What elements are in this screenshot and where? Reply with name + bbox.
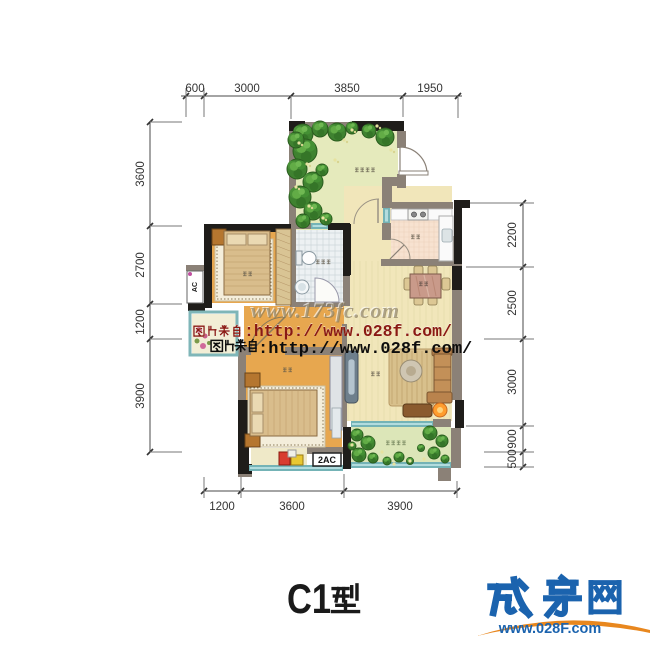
svg-text:2500: 2500	[507, 290, 519, 316]
svg-text:www.173fc.com: www.173fc.com	[251, 298, 400, 323]
svg-text:2200: 2200	[507, 222, 519, 248]
svg-text:3900: 3900	[387, 501, 413, 513]
svg-text:3000: 3000	[234, 83, 260, 95]
svg-text:C1: C1	[287, 576, 331, 623]
svg-text:900: 900	[507, 429, 519, 448]
svg-text::http://www.028f.com/: :http://www.028f.com/	[244, 322, 452, 341]
svg-text:500: 500	[507, 449, 519, 468]
svg-text:www.028F.com: www.028F.com	[498, 621, 602, 637]
svg-text:3850: 3850	[334, 83, 360, 95]
svg-text:AC: AC	[192, 282, 199, 292]
svg-text:3900: 3900	[135, 383, 147, 409]
svg-text:2AC: 2AC	[318, 455, 337, 465]
svg-text:3600: 3600	[279, 501, 305, 513]
svg-text::http://www.028f.com/: :http://www.028f.com/	[258, 340, 472, 359]
svg-text:1200: 1200	[209, 501, 235, 513]
svg-text:1200: 1200	[135, 309, 147, 335]
svg-text:1950: 1950	[417, 83, 443, 95]
svg-text:3600: 3600	[135, 161, 147, 187]
svg-text:600: 600	[185, 83, 204, 95]
svg-text:3000: 3000	[507, 369, 519, 395]
svg-text:2700: 2700	[135, 252, 147, 278]
